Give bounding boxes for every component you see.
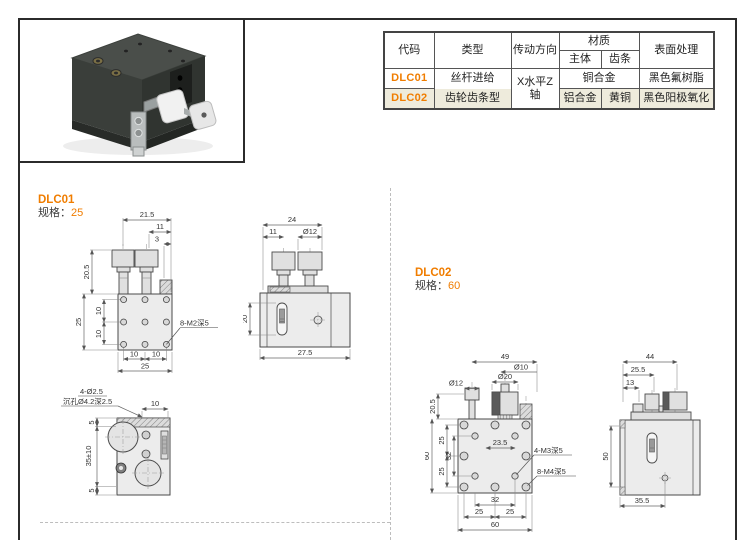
dim-label: 35.5 (635, 496, 650, 505)
dlc01-side-part (260, 248, 350, 347)
dim-label: 25 (475, 507, 483, 516)
dim-label: Ø12 (303, 227, 317, 236)
col-header-material: 材质 (559, 32, 639, 51)
dim-label: 13 (626, 378, 634, 387)
dim-label: 25 (437, 436, 446, 444)
dlc01-side-view: 24 11 Ø12 20 27.5 (243, 210, 368, 370)
dim-label: 60 (491, 520, 499, 529)
dlc02-spec-value: 60 (448, 280, 460, 292)
dim-label: 23.5 (493, 438, 508, 447)
dlc01-front-part (112, 244, 172, 350)
dim-label: 44 (646, 352, 654, 361)
dlc01-bottom-part (105, 418, 170, 495)
dim-label: 50 (603, 452, 610, 460)
col-header-material-body: 主体 (559, 51, 601, 69)
dlc02-front-dimensions: 49 Ø10 Ø20 Ø12 20.5 60 25 32 (425, 352, 576, 532)
dlc02-front-part (458, 376, 532, 493)
col-header-type: 类型 (434, 32, 511, 69)
col-header-surface: 表面处理 (639, 32, 714, 69)
dim-label: Ø20 (498, 372, 512, 381)
dlc02-title: DLC02 (415, 266, 460, 280)
dim-label: Ø10 (514, 363, 528, 372)
dlc02-spec-label: 规格： (415, 280, 448, 292)
cell-material-rack-dlc02: 黄铜 (601, 89, 639, 110)
cell-material-dlc01: 铜合金 (559, 69, 639, 89)
thread-callout: 8-M2深5 (180, 319, 209, 328)
cell-direction: X水平Z轴 (511, 69, 559, 110)
col-header-code: 代码 (384, 32, 434, 69)
dim-label: 24 (288, 215, 296, 224)
dlc02-side-view: 44 25.5 13 50 35.5 (603, 348, 738, 526)
product-photo (20, 20, 243, 161)
dim-label: 32 (444, 452, 453, 460)
dim-label: 21.5 (140, 210, 155, 219)
dim-label: 20 (243, 315, 249, 323)
dim-label: 35±10 (84, 446, 93, 467)
cell-surface-dlc01: 黑色氟树脂 (639, 69, 714, 89)
dlc02-side-part (620, 388, 700, 495)
dlc01-spec-label: 规格： (38, 207, 71, 219)
dim-label: Ø12 (449, 379, 463, 388)
dim-label: 11 (269, 227, 277, 236)
dim-label: 27.5 (298, 348, 313, 357)
product-photo-box (18, 18, 245, 163)
dim-label: 20.5 (82, 265, 91, 280)
dlc02-spec: 规格：60 (415, 280, 460, 294)
dim-label: 25 (141, 362, 149, 371)
cell-type-dlc02: 齿轮齿条型 (434, 89, 511, 110)
cell-material-body-dlc02: 铝合金 (559, 89, 601, 110)
dlc01-front-view: 21.5 11 3 20.5 25 10 10 10 10 (72, 206, 244, 378)
dim-label: 10 (151, 399, 159, 408)
dim-label: 49 (501, 352, 509, 361)
hole-callout: 4-Ø2.5 (80, 387, 103, 396)
dlc01-bottom-view: 4-Ø2.5 沉孔Ø4.2深2.5 10 5 35±10 5 (55, 386, 205, 526)
dim-label: 11 (156, 222, 164, 231)
cell-type-dlc01: 丝杆进给 (434, 69, 511, 89)
dim-label: 25 (506, 507, 514, 516)
vertical-dashed-divider (390, 188, 391, 540)
thread-callout-m3: 4-M3深5 (534, 446, 563, 455)
table-row-dlc01: DLC01 丝杆进给 X水平Z轴 铜合金 黑色氟树脂 (384, 69, 714, 89)
col-header-material-rack: 齿条 (601, 51, 639, 69)
dim-label: 25 (437, 467, 446, 475)
dim-label: 25 (74, 318, 83, 326)
spec-table: 代码 类型 传动方向 材质 表面处理 主体 齿条 DLC01 丝杆进给 X水平Z… (383, 31, 715, 110)
thread-callout-m4: 8-M4深5 (537, 467, 566, 476)
dim-label: 10 (94, 307, 103, 315)
dim-label: 10 (152, 350, 160, 359)
dim-label: 3 (155, 235, 159, 244)
cell-code-dlc01: DLC01 (384, 69, 434, 89)
dim-label: 60 (425, 452, 431, 460)
cell-code-dlc02: DLC02 (384, 89, 434, 110)
catalog-page: 代码 类型 传动方向 材质 表面处理 主体 齿条 DLC01 丝杆进给 X水平Z… (0, 0, 750, 540)
dlc02-front-view: 49 Ø10 Ø20 Ø12 20.5 60 25 32 (425, 330, 610, 538)
dlc02-heading: DLC02 规格：60 (415, 266, 460, 294)
dim-label: 10 (94, 330, 103, 338)
dim-label: 25.5 (631, 365, 646, 374)
cell-surface-dlc02: 黑色阳极氧化 (639, 89, 714, 110)
col-header-direction: 传动方向 (511, 32, 559, 69)
mounting-bracket (131, 112, 146, 156)
counterbore-callout: 沉孔Ø4.2深2.5 (63, 397, 112, 406)
dim-label: 5 (87, 420, 96, 424)
dim-label: 5 (87, 488, 96, 492)
dim-label: 20.5 (428, 399, 437, 414)
dim-label: 10 (130, 350, 138, 359)
